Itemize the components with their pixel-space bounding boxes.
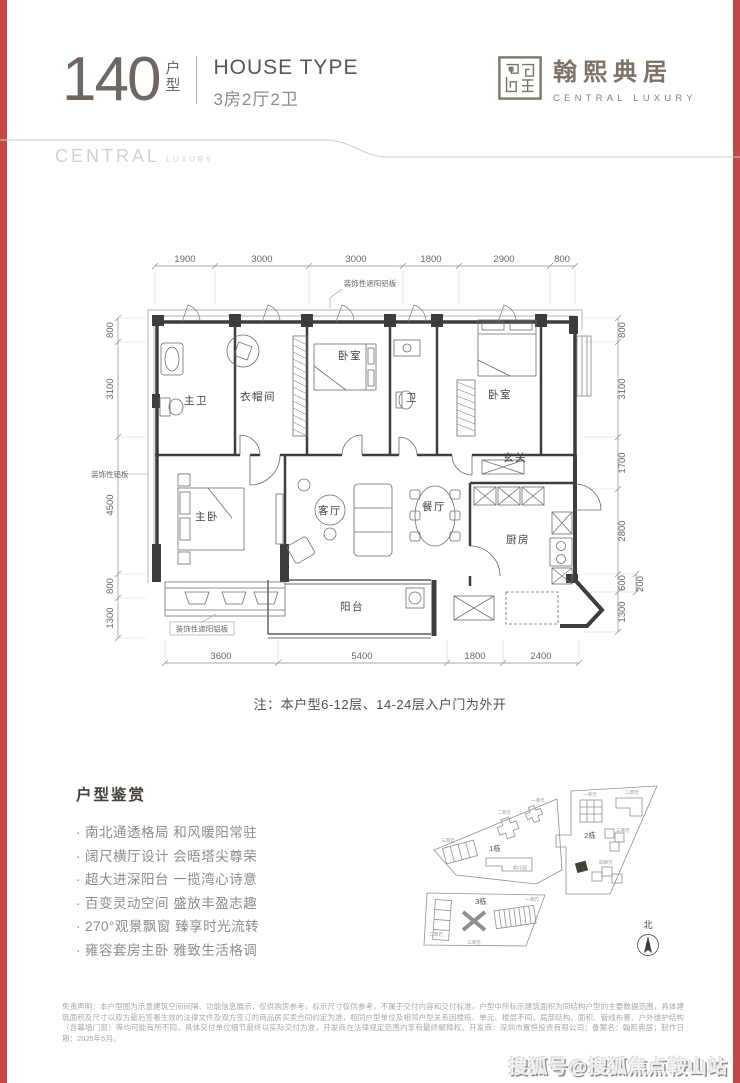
appreciation-section: 户型鉴赏 南北通透格局 和风暖阳常驻 阔尺横厅设计 会晤塔尖尊荣 超大进深阳台 …: [76, 783, 386, 962]
dim-top-6: 800: [554, 254, 570, 265]
brand-logo: 翰熙典居 CENTRAL LUXURY: [497, 52, 697, 104]
plan-annotations: 装饰性遮阳铝板 装饰性铝板 装饰性遮阳铝板: [91, 278, 397, 635]
band-word-luxury: LUXURY: [166, 155, 213, 164]
dim-bottom-3: 1800: [464, 651, 485, 662]
unit-char-bottom: 型: [165, 77, 180, 94]
block-3-label: 3栋: [475, 896, 487, 906]
dim-top-5: 2900: [493, 254, 514, 265]
house-type-en: HOUSE TYPE: [213, 56, 358, 80]
unit-label: 二单元: [497, 809, 511, 816]
siteplan: 1栋 2栋 3栋 一单元 二单元 三单元 幼儿园 一单元 二单元 三单元 四单元…: [420, 772, 720, 987]
plan-note: 注：本户型6-12层、14-24层入户门为外开: [220, 694, 540, 713]
appreciation-item: 阔尺横厅设计 会晤塔尖尊荣: [76, 845, 386, 869]
unit-char-top: 户: [165, 60, 180, 77]
room-master-bedroom: 主卧: [195, 510, 219, 523]
north-compass: 北: [638, 920, 659, 956]
compass-needle-icon: [644, 936, 652, 953]
room-dining: 餐厅: [422, 500, 446, 513]
highlighted-building: [575, 861, 588, 874]
dim-top-4: 1800: [420, 254, 441, 265]
unit-label: 三单元: [616, 827, 630, 834]
annotation-top: 装饰性遮阳铝板: [344, 278, 397, 288]
dim-bottom-4: 2400: [530, 651, 551, 662]
room-kitchen: 厨房: [506, 533, 530, 546]
unit-label: 幼儿园: [513, 864, 527, 871]
unit-label: 一单元: [583, 791, 597, 798]
band-text: CENTRALLUXURY: [55, 146, 213, 167]
appreciation-item: 270°观景飘窗 臻享时光流转: [76, 915, 386, 939]
house-type-number: 140: [62, 50, 159, 110]
extension-lines: [120, 270, 634, 661]
block-1-label: 1栋: [489, 843, 501, 853]
brand-seal-icon: [497, 55, 543, 101]
dim-left-5: 1300: [105, 607, 116, 628]
disclaimer-text: 免责声明：本户型图为示意建筑空间间隔、功能信息展示，仅供购房参考，标示尺寸仅供参…: [62, 1002, 684, 1044]
dim-right-offset: 200: [635, 576, 646, 592]
dim-top-3: 3000: [345, 254, 366, 265]
brand-name-cn: 翰熙典居: [553, 52, 697, 87]
house-type-header: 140 户 型 HOUSE TYPE 3房2厅2卫: [62, 50, 358, 110]
parcel-outlines: [424, 786, 657, 946]
unit-label: 二单元: [429, 931, 443, 938]
dim-right-5: 600: [617, 575, 628, 591]
room-bedroom-a: 卧室: [338, 349, 362, 362]
furniture: [160, 320, 572, 624]
dim-left-4: 800: [105, 578, 116, 594]
walls: [155, 318, 602, 638]
dim-bottom-1: 3600: [210, 651, 231, 662]
dim-bottom-2: 5400: [351, 651, 372, 662]
appreciation-item: 南北通透格局 和风暖阳常驻: [76, 821, 386, 845]
dim-top-1: 1900: [174, 254, 195, 265]
room-bedroom-b: 卧室: [488, 388, 512, 401]
unit-label: 一单元: [531, 797, 545, 804]
dim-right-4: 2800: [617, 520, 628, 541]
room-cloakroom: 衣帽间: [240, 390, 276, 403]
room-master-bath: 主卫: [184, 395, 208, 407]
north-label: 北: [643, 920, 652, 930]
block-2-label: 2栋: [584, 830, 596, 840]
appreciation-item: 百变灵动空间 盛放丰盈志趣: [76, 892, 386, 916]
dim-right-2: 3100: [617, 378, 628, 399]
unit-label: 一单元: [525, 896, 539, 903]
room-living: 客厅: [318, 504, 342, 517]
dim-left-1: 800: [105, 322, 116, 338]
siteplan-drawing: 1栋 2栋 3栋 一单元 二单元 三单元 幼儿园 一单元 二单元 三单元 四单元…: [420, 772, 720, 982]
room-count-label: 3房2厅2卫: [213, 85, 358, 110]
flyer-page: 140 户 型 HOUSE TYPE 3房2厅2卫: [0, 0, 740, 1083]
header-divider: [196, 56, 197, 104]
unit-label: 三单元: [441, 837, 455, 844]
annotation-left: 装饰性铝板: [91, 469, 129, 479]
room-balcony: 阳台: [340, 600, 364, 613]
floorplan: 1900 3000 3000 1800 2900 800 800 3100 45…: [90, 248, 650, 693]
dimension-labels: 1900 3000 3000 1800 2900 800 800 3100 45…: [105, 254, 646, 662]
appreciation-list: 南北通透格局 和风暖阳常驻 阔尺横厅设计 会晤塔尖尊荣 超大进深阳台 一揽湾心诗…: [76, 821, 386, 962]
appreciation-title: 户型鉴赏: [76, 783, 386, 805]
building-footprints: [433, 798, 642, 941]
floorplan-drawing: 1900 3000 3000 1800 2900 800 800 3100 45…: [90, 248, 650, 688]
appreciation-item: 超大进深阳台 一揽湾心诗意: [76, 868, 386, 892]
dim-right-3: 1700: [617, 452, 628, 473]
dim-left-2: 3100: [105, 378, 116, 399]
room-foyer: 玄关: [503, 451, 527, 464]
dim-right-1: 800: [617, 322, 628, 338]
brand-name-en: CENTRAL LUXURY: [553, 93, 697, 104]
unit-label: 四单元: [599, 859, 613, 866]
dim-right-6: 1300: [617, 601, 628, 622]
dim-left-3: 4500: [105, 494, 116, 515]
central-luxury-band: CENTRALLUXURY: [0, 132, 740, 178]
brand-names: 翰熙典居 CENTRAL LUXURY: [553, 52, 697, 104]
appreciation-item: 雍容套房主卧 雅致生活格调: [76, 939, 386, 963]
sohu-watermark: 搜狐号@搜狐焦点鞍山站: [508, 1052, 728, 1079]
unit-labels: 一单元 二单元 三单元 幼儿园 一单元 二单元 三单元 四单元 一单元 二单元 …: [429, 789, 639, 946]
house-type-unit-chars: 户 型: [165, 60, 180, 94]
unit-label: 二单元: [625, 789, 639, 796]
annotation-bottom: 装饰性遮阳铝板: [176, 624, 229, 634]
dim-top-2: 3000: [251, 254, 272, 265]
unit-label: 三单元: [467, 939, 481, 946]
room-bath: 卫: [406, 392, 418, 404]
band-word-central: CENTRAL: [55, 146, 160, 166]
header-subtitles: HOUSE TYPE 3房2厅2卫: [213, 56, 358, 110]
